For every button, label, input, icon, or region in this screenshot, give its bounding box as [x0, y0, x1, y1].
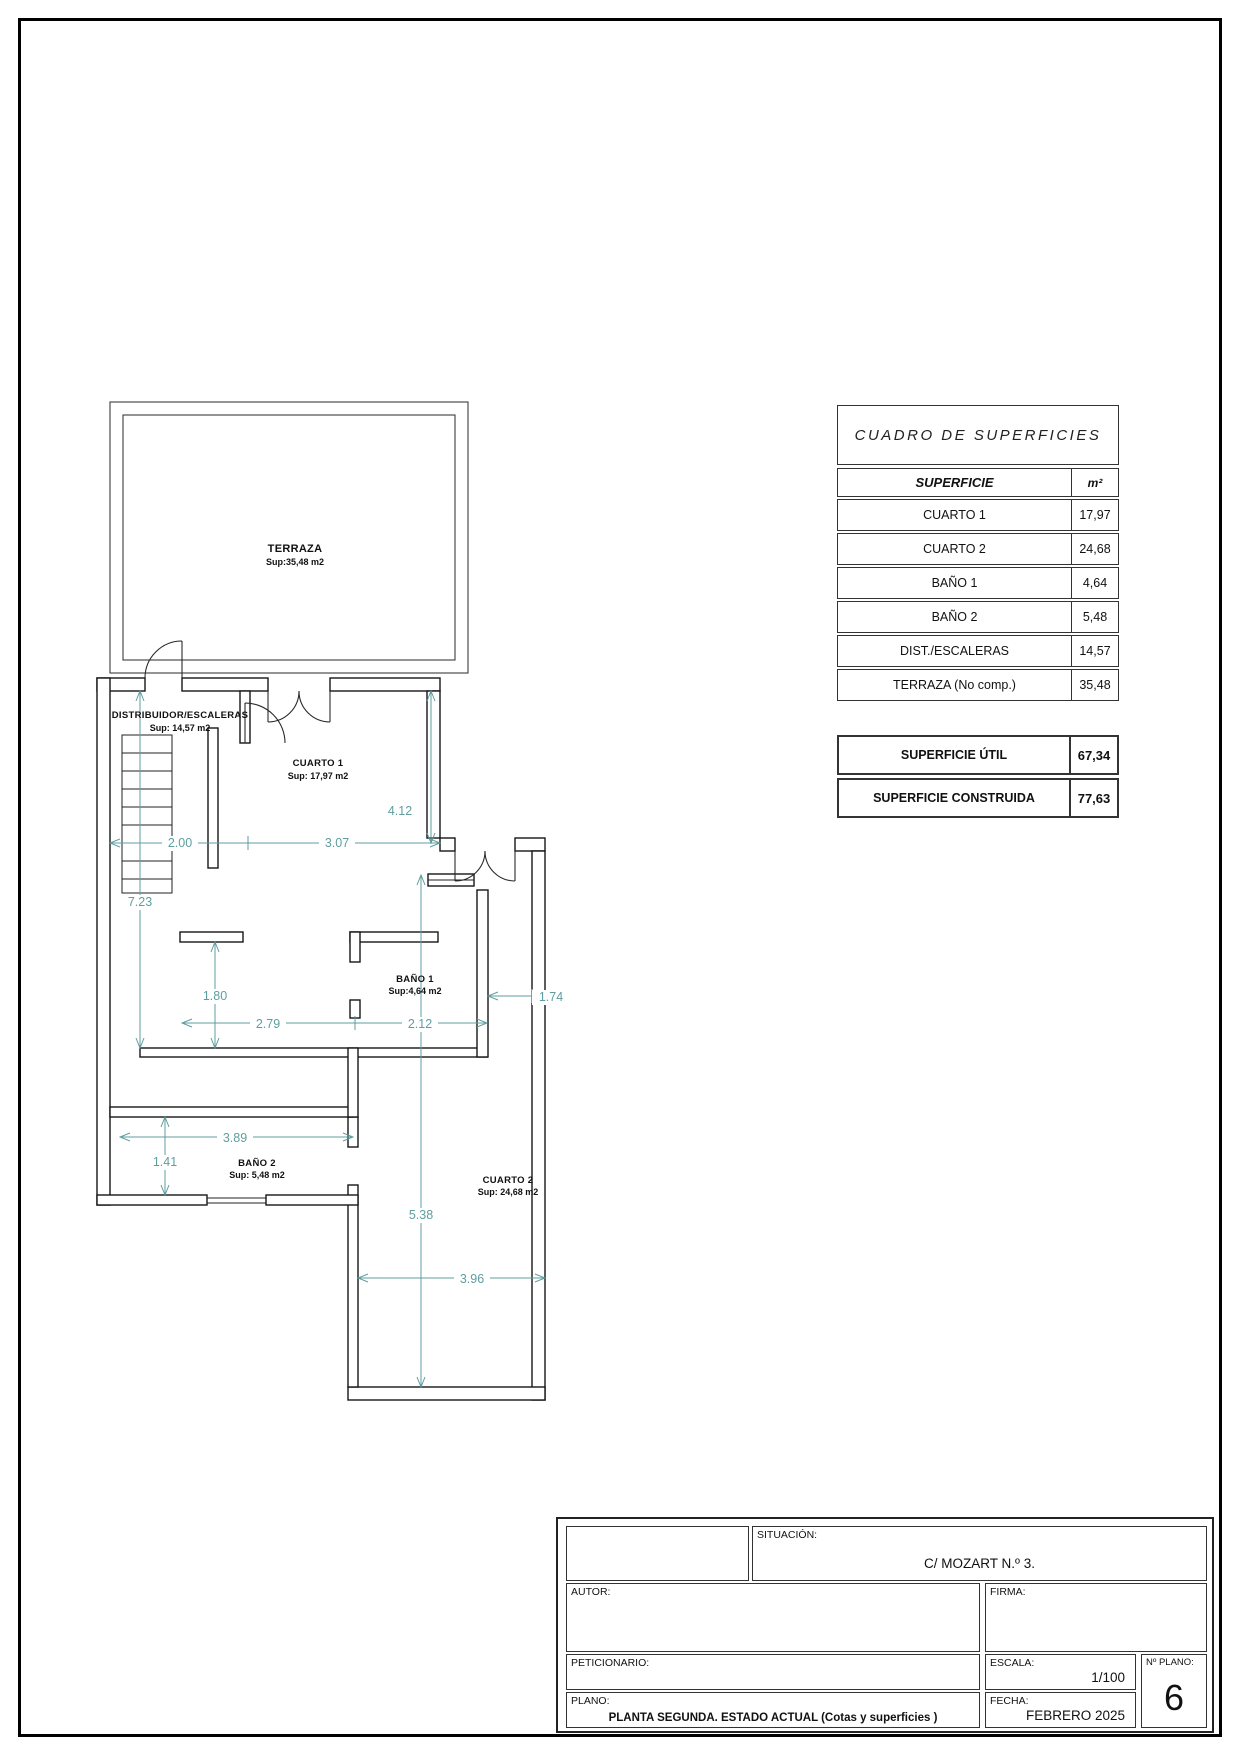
surfaces-header-unit: m² — [1071, 469, 1118, 496]
room-distribuidor-sup: Sup: 14,57 m2 — [150, 723, 211, 733]
row-label: CUARTO 2 — [838, 534, 1071, 564]
row-label: TERRAZA (No comp.) — [838, 670, 1071, 700]
autor-box: AUTOR: — [566, 1583, 980, 1652]
escala-box: ESCALA: 1/100 — [985, 1654, 1136, 1690]
plano-value: PLANTA SEGUNDA. ESTADO ACTUAL (Cotas y s… — [567, 1712, 979, 1724]
numero-plano-value: 6 — [1142, 1677, 1206, 1719]
dim-2-79: 2.79 — [256, 1017, 280, 1031]
stairs — [122, 735, 172, 893]
summary-value: 67,34 — [1069, 737, 1117, 773]
dim-2-12: 2.12 — [408, 1017, 432, 1031]
row-label: BAÑO 1 — [838, 568, 1071, 598]
dim-7-23: 7.23 — [128, 895, 152, 909]
row-label: CUARTO 1 — [838, 500, 1071, 530]
dim-4-12: 4.12 — [388, 804, 412, 818]
plan-sheet: 2.00 3.07 4.12 7.23 1.80 2.79 2.12 1.74 … — [0, 0, 1240, 1755]
table-row: BAÑO 2 5,48 — [837, 601, 1119, 633]
fecha-box: FECHA: FEBRERO 2025 — [985, 1692, 1136, 1728]
firma-label: FIRMA: — [990, 1586, 1026, 1598]
table-row: BAÑO 1 4,64 — [837, 567, 1119, 599]
surfaces-table: CUADRO DE SUPERFICIES SUPERFICIE m² CUAR… — [837, 405, 1119, 703]
dim-3-96: 3.96 — [460, 1272, 484, 1286]
peticionario-label: PETICIONARIO: — [571, 1657, 649, 1669]
dim-1-80: 1.80 — [203, 989, 227, 1003]
fecha-label: FECHA: — [990, 1695, 1029, 1707]
escala-value: 1/100 — [1091, 1670, 1125, 1685]
floor-plan-svg: 2.00 3.07 4.12 7.23 1.80 2.79 2.12 1.74 … — [0, 0, 1240, 1755]
row-value: 14,57 — [1071, 636, 1118, 666]
dim-3-07: 3.07 — [325, 836, 349, 850]
dim-1-74: 1.74 — [539, 990, 563, 1004]
room-terraza-name: TERRAZA — [268, 543, 323, 555]
surfaces-table-header: SUPERFICIE m² — [837, 468, 1119, 497]
row-value: 4,64 — [1071, 568, 1118, 598]
firma-box: FIRMA: — [985, 1583, 1207, 1652]
numero-plano-label: Nº PLANO: — [1146, 1657, 1194, 1668]
table-row: TERRAZA (No comp.) 35,48 — [837, 669, 1119, 701]
room-cuarto1-name: CUARTO 1 — [293, 758, 344, 769]
table-row: CUARTO 1 17,97 — [837, 499, 1119, 531]
autor-label: AUTOR: — [571, 1586, 610, 1598]
peticionario-box: PETICIONARIO: — [566, 1654, 980, 1690]
row-value: 17,97 — [1071, 500, 1118, 530]
surfaces-summary: SUPERFICIE ÚTIL 67,34 SUPERFICIE CONSTRU… — [837, 735, 1119, 821]
terraza-walls — [110, 402, 468, 673]
title-block: SITUACIÓN: C/ MOZART N.º 3. AUTOR: FIRMA… — [556, 1517, 1214, 1733]
title-block-logo-box — [566, 1526, 749, 1581]
summary-value: 77,63 — [1069, 780, 1117, 816]
row-value: 35,48 — [1071, 670, 1118, 700]
surfaces-table-title: CUADRO DE SUPERFICIES — [837, 405, 1119, 465]
dimension-label-backgrounds — [122, 804, 570, 1287]
numero-plano-box: Nº PLANO: 6 — [1141, 1654, 1207, 1728]
room-terraza-sup: Sup:35,48 m2 — [266, 557, 324, 567]
dim-1-41: 1.41 — [153, 1155, 177, 1169]
dim-2-00: 2.00 — [168, 836, 192, 850]
fecha-value: FEBRERO 2025 — [1026, 1708, 1125, 1723]
situacion-value: C/ MOZART N.º 3. — [753, 1527, 1206, 1590]
summary-label: SUPERFICIE ÚTIL — [839, 737, 1069, 773]
situacion-box: SITUACIÓN: C/ MOZART N.º 3. — [752, 1526, 1207, 1581]
table-row: CUARTO 2 24,68 — [837, 533, 1119, 565]
summary-row-util: SUPERFICIE ÚTIL 67,34 — [837, 735, 1119, 775]
unit-walls — [97, 678, 545, 1400]
dim-3-89: 3.89 — [223, 1131, 247, 1145]
surfaces-header-label: SUPERFICIE — [838, 469, 1071, 496]
dimension-lines — [110, 691, 570, 1387]
situacion-label: SITUACIÓN: — [757, 1529, 817, 1541]
row-label: BAÑO 2 — [838, 602, 1071, 632]
summary-row-construida: SUPERFICIE CONSTRUIDA 77,63 — [837, 778, 1119, 818]
plano-box: PLANO: PLANTA SEGUNDA. ESTADO ACTUAL (Co… — [566, 1692, 980, 1728]
escala-label: ESCALA: — [990, 1657, 1034, 1669]
room-cuarto1-sup: Sup: 17,97 m2 — [288, 771, 349, 781]
summary-label: SUPERFICIE CONSTRUIDA — [839, 780, 1069, 816]
room-bano2-name: BAÑO 2 — [238, 1158, 276, 1169]
dim-5-38: 5.38 — [409, 1208, 433, 1222]
plano-label: PLANO: — [571, 1695, 610, 1707]
table-row: DIST./ESCALERAS 14,57 — [837, 635, 1119, 667]
room-bano1-name: BAÑO 1 — [396, 974, 434, 985]
row-label: DIST./ESCALERAS — [838, 636, 1071, 666]
room-bano2-sup: Sup: 5,48 m2 — [229, 1170, 285, 1180]
row-value: 5,48 — [1071, 602, 1118, 632]
room-bano1-sup: Sup:4,64 m2 — [388, 986, 441, 996]
room-cuarto2-sup: Sup: 24,68 m2 — [478, 1187, 539, 1197]
room-cuarto2-name: CUARTO 2 — [483, 1175, 534, 1186]
room-distribuidor-name: DISTRIBUIDOR/ESCALERAS — [112, 710, 248, 721]
row-value: 24,68 — [1071, 534, 1118, 564]
